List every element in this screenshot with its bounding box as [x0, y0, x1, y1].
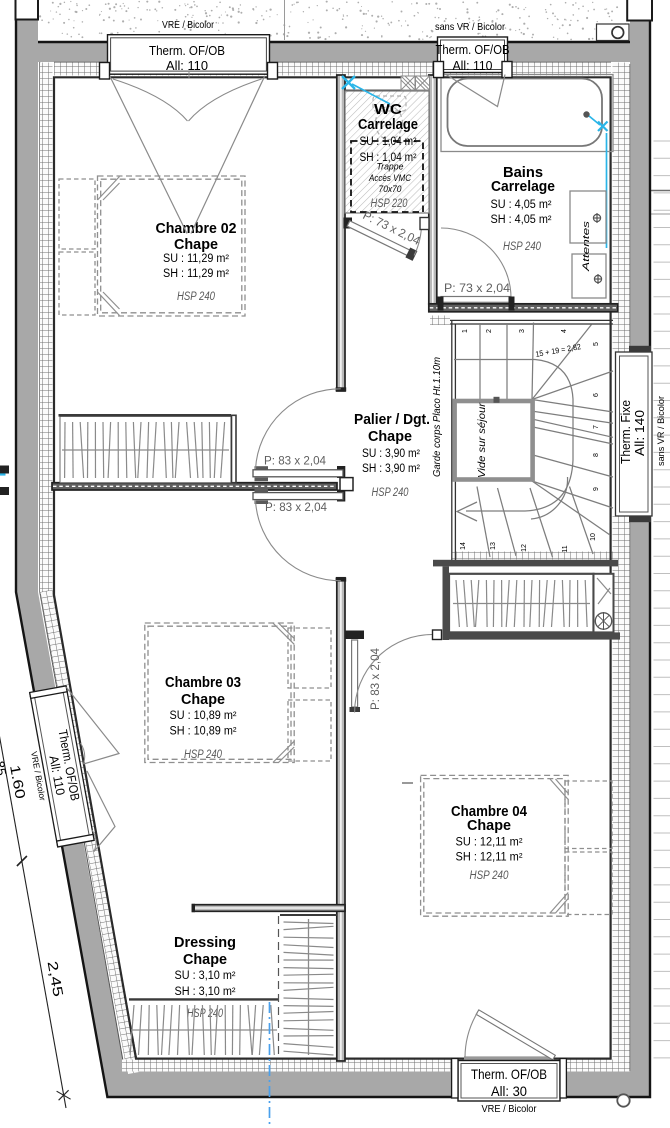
svg-text:SH : 11,29 m²: SH : 11,29 m² — [163, 268, 229, 280]
svg-text:Palier / Dgt.: Palier / Dgt. — [354, 412, 430, 428]
svg-text:13: 13 — [490, 542, 497, 550]
svg-text:All: 30: All: 30 — [491, 1083, 527, 1099]
svg-text:Chape: Chape — [174, 237, 218, 253]
svg-text:Chambre 03: Chambre 03 — [165, 675, 241, 691]
svg-text:HSP 240: HSP 240 — [187, 1008, 223, 1020]
svg-text:HSP 240: HSP 240 — [372, 487, 409, 499]
svg-text:HSP 220: HSP 220 — [371, 198, 408, 210]
svg-text:All: 110: All: 110 — [453, 58, 493, 73]
svg-text:VRE / Bicolor: VRE / Bicolor — [482, 1103, 537, 1115]
svg-text:SH : 3,90 m²: SH : 3,90 m² — [362, 463, 420, 475]
svg-text:85: 85 — [0, 760, 9, 777]
svg-text:12: 12 — [521, 544, 528, 552]
svg-text:Chape: Chape — [181, 692, 225, 708]
svg-text:HSP 240: HSP 240 — [503, 241, 541, 253]
svg-text:Chape: Chape — [467, 818, 511, 834]
svg-text:SU : 1,04 m²: SU : 1,04 m² — [360, 136, 417, 148]
svg-text:Chape: Chape — [183, 952, 227, 968]
svg-text:Carrelage: Carrelage — [491, 179, 555, 195]
svg-text:11: 11 — [562, 545, 569, 552]
svg-text:Attentes: Attentes — [581, 220, 591, 272]
svg-text:Therm. OF/OB: Therm. OF/OB — [471, 1066, 547, 1082]
svg-text:SH : 4,05 m²: SH : 4,05 m² — [491, 214, 552, 226]
svg-text:Accès VMC: Accès VMC — [368, 173, 411, 184]
svg-text:70x70: 70x70 — [379, 184, 402, 194]
svg-text:SU : 3,90 m²: SU : 3,90 m² — [362, 448, 420, 460]
svg-text:SU : 11,29 m²: SU : 11,29 m² — [163, 253, 229, 265]
svg-text:6: 6 — [593, 393, 600, 397]
svg-text:5: 5 — [593, 342, 600, 346]
svg-text:SU : 12,11 m²: SU : 12,11 m² — [456, 837, 523, 849]
svg-text:P: 83 x 2,04: P: 83 x 2,04 — [368, 648, 382, 710]
svg-text:Garde corps Placo Ht.1.10m: Garde corps Placo Ht.1.10m — [432, 357, 443, 477]
svg-text:SU : 4,05 m²: SU : 4,05 m² — [491, 199, 552, 211]
svg-text:1: 1 — [462, 329, 469, 333]
svg-text:9: 9 — [593, 487, 600, 491]
svg-text:All: 140: All: 140 — [632, 410, 647, 456]
svg-text:Chape: Chape — [368, 429, 412, 445]
svg-text:14: 14 — [460, 542, 467, 550]
svg-text:P: 73 x 2,04: P: 73 x 2,04 — [444, 281, 510, 295]
svg-text:Vide sur séjour: Vide sur séjour — [476, 402, 488, 478]
svg-text:sans VR / Bicolor: sans VR / Bicolor — [435, 21, 505, 33]
svg-text:8: 8 — [593, 453, 600, 457]
svg-text:3: 3 — [519, 329, 526, 333]
svg-text:sans VR / Bicolor: sans VR / Bicolor — [656, 396, 667, 466]
svg-text:SU : 10,89 m²: SU : 10,89 m² — [170, 710, 237, 722]
svg-text:SU : 3,10 m²: SU : 3,10 m² — [175, 970, 236, 982]
svg-text:Carrelage: Carrelage — [358, 117, 418, 133]
svg-text:HSP 240: HSP 240 — [177, 291, 215, 303]
svg-text:10: 10 — [590, 533, 597, 541]
svg-text:Therm. OF/OB: Therm. OF/OB — [436, 42, 510, 57]
svg-text:WC: WC — [374, 102, 403, 118]
svg-text:All: 110: All: 110 — [166, 58, 208, 73]
svg-text:SH : 3,10 m²: SH : 3,10 m² — [175, 986, 236, 998]
svg-text:SH : 12,11 m²: SH : 12,11 m² — [456, 852, 523, 864]
svg-text:VRE / Bicolor: VRE / Bicolor — [162, 19, 214, 31]
svg-text:HSP 240: HSP 240 — [470, 870, 510, 882]
svg-text:4: 4 — [561, 329, 568, 333]
svg-text:2: 2 — [486, 329, 493, 333]
svg-text:SH : 10,89 m²: SH : 10,89 m² — [170, 726, 237, 738]
svg-text:P: 83 x 2,04: P: 83 x 2,04 — [264, 454, 326, 468]
svg-text:7: 7 — [593, 425, 600, 429]
svg-text:Therm. OF/OB: Therm. OF/OB — [149, 43, 225, 58]
svg-text:Therm. Fixe: Therm. Fixe — [618, 400, 633, 464]
svg-text:P: 83 x 2,04: P: 83 x 2,04 — [265, 500, 327, 514]
svg-text:Dressing: Dressing — [174, 935, 236, 951]
svg-text:Trappe: Trappe — [377, 162, 404, 172]
